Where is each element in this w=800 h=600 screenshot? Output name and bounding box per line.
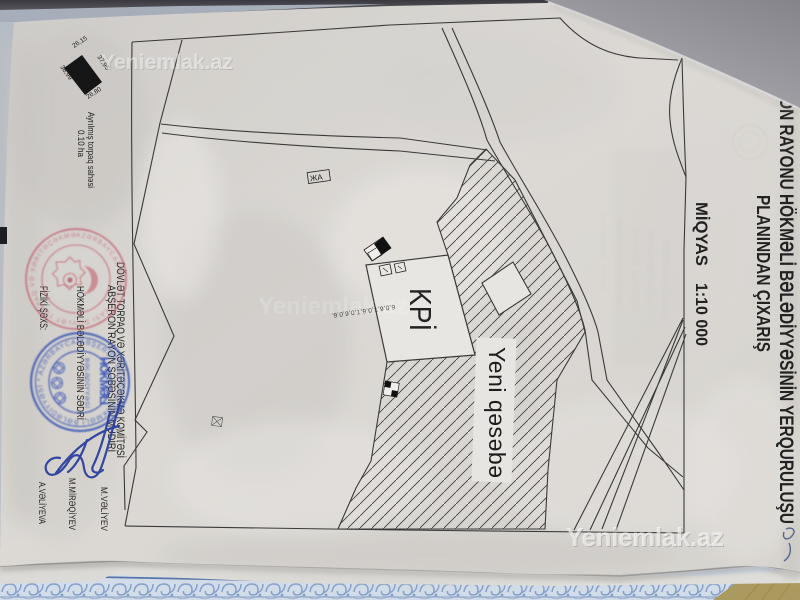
svg-text:A.VƏLİYEVA: A.VƏLİYEVA: [36, 482, 47, 525]
svg-text:Yeniemlak.az: Yeniemlak.az: [566, 522, 724, 552]
svg-text:PLANINDAN ÇIXARIŞ: PLANINDAN ÇIXARIŞ: [753, 195, 773, 352]
svg-text:0.10 ha: 0.10 ha: [75, 130, 86, 158]
svg-text:1:10 000: 1:10 000: [692, 283, 711, 346]
svg-text:NOYAR NOREJBA: NOYAR NOREJBA: [646, 230, 656, 304]
svg-text:RON RAYONU HÖKMƏLİ BƏLƏDİYYƏSİ: RON RAYONU HÖKMƏLİ BƏLƏDİYYƏSİNİN YERQUR…: [775, 86, 796, 524]
svg-text:M.MİRƏQİYEV: M.MİRƏQİYEV: [66, 478, 77, 531]
svg-text:ЖА: ЖА: [309, 172, 324, 183]
svg-text:MİQYAS: MİQYAS: [692, 202, 711, 266]
svg-text:BƏLƏDİYYƏSİ: BƏLƏDİYYƏSİ: [83, 358, 92, 408]
svg-text:Yeni qəsəbə: Yeni qəsəbə: [484, 347, 510, 478]
svg-text:14 YNB0101 TPKAF: 14 YNB0101 TPKAF: [598, 212, 608, 291]
svg-text:ISETIMOK EMKECET: ISETIMOK EMKECET: [630, 226, 640, 312]
svg-text:IRIDUM ININISEBOJ: IRIDUM ININISEBOJ: [661, 240, 671, 321]
svg-text:Yeniemlak.az: Yeniemlak.az: [101, 50, 233, 74]
svg-text:M.VƏLİYEV: M.VƏLİYEV: [98, 487, 109, 532]
svg-text:KPİ: KPİ: [403, 288, 438, 331]
svg-text:Yeniemlak.az: Yeniemlak.az: [258, 293, 408, 320]
svg-text:HÖKMƏLİ: HÖKMƏLİ: [97, 357, 110, 405]
svg-text:QAPROT TELVOD NAJ: QAPROT TELVOD NAJ: [614, 218, 624, 310]
